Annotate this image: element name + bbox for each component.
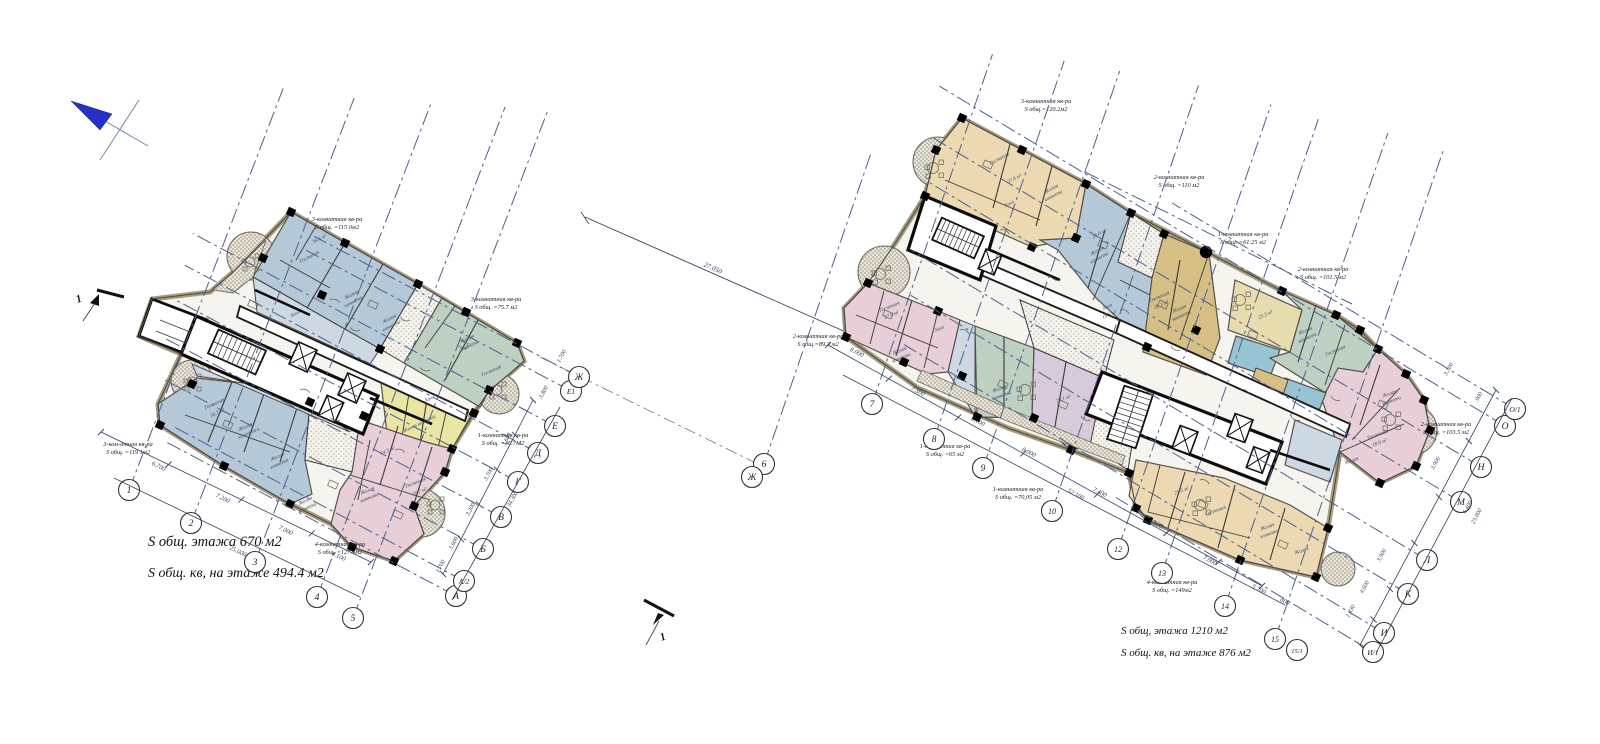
- svg-text:S общ. кв, на этаже 494.4 м2: S общ. кв, на этаже 494.4 м2: [148, 566, 324, 581]
- svg-text:Е: Е: [551, 422, 558, 432]
- svg-text:S общ.=89.3 м2: S общ.=89.3 м2: [797, 341, 839, 348]
- svg-text:S общ. =75.7 м2: S общ. =75.7 м2: [475, 304, 519, 311]
- svg-text:1-комнатная кв-ра: 1-комнатная кв-ра: [993, 486, 1044, 493]
- svg-text:S общ. =65 м2: S общ. =65 м2: [926, 451, 965, 458]
- svg-text:S общ. =70,05 м2: S общ. =70,05 м2: [995, 494, 1042, 501]
- svg-text:3-комнатная кв-ра: 3-комнатная кв-ра: [470, 296, 522, 303]
- svg-text:10: 10: [1048, 507, 1056, 516]
- svg-text:14: 14: [1221, 602, 1229, 611]
- svg-text:3: 3: [252, 558, 258, 568]
- svg-text:В: В: [498, 513, 504, 523]
- svg-text:S общ. =103.5 м2: S общ. =103.5 м2: [1423, 429, 1470, 436]
- svg-text:2-комнатная кв-ра: 2-комнатная кв-ра: [1154, 174, 1205, 181]
- svg-text:8: 8: [932, 435, 937, 445]
- svg-text:О/1: О/1: [1509, 405, 1520, 414]
- svg-text:2: 2: [189, 519, 194, 529]
- svg-text:S общ. =115 0м2: S общ. =115 0м2: [315, 224, 360, 231]
- svg-text:Ж: Ж: [574, 373, 585, 383]
- svg-text:S общ. =149м2: S общ. =149м2: [1152, 587, 1193, 594]
- svg-text:13: 13: [1158, 569, 1166, 578]
- svg-text:1: 1: [127, 486, 132, 496]
- svg-text:12: 12: [1114, 545, 1122, 554]
- svg-text:3-комнатная кв-ра: 3-комнатная кв-ра: [1020, 98, 1072, 105]
- svg-text:2-комнатная кв-ра: 2-комнатная кв-ра: [793, 333, 844, 340]
- svg-text:2-комнатная кв-ра: 2-комнатная кв-ра: [1298, 266, 1349, 273]
- svg-text:5: 5: [351, 614, 356, 624]
- svg-text:S общ. кв, на этаже 876 м2: S общ. кв, на этаже 876 м2: [1121, 647, 1251, 659]
- svg-text:Ж: Ж: [747, 473, 758, 483]
- svg-text:2-комнатная кв-ра: 2-комнатная кв-ра: [1421, 421, 1472, 428]
- svg-text:3-комнатная кв-ра: 3-комнатная кв-ра: [311, 216, 363, 223]
- svg-text:И/1: И/1: [1366, 648, 1378, 657]
- svg-text:15/1: 15/1: [1291, 648, 1303, 655]
- svg-text:S общ, этажа 1210 м2: S общ, этажа 1210 м2: [1121, 625, 1228, 637]
- svg-text:6: 6: [762, 460, 767, 470]
- svg-text:4: 4: [315, 593, 320, 603]
- svg-text:Н: Н: [1477, 463, 1486, 473]
- svg-text:S общ. этажа 670 м2: S общ. этажа 670 м2: [148, 534, 282, 550]
- svg-text:S общ. =101.5 м2: S общ. =101.5 м2: [1300, 274, 1347, 281]
- svg-text:9: 9: [981, 464, 986, 474]
- svg-text:15: 15: [1271, 635, 1279, 644]
- svg-text:Е1: Е1: [566, 387, 575, 396]
- svg-text:1-комнатная кв-ра: 1-комнатная кв-ра: [478, 432, 529, 439]
- svg-text:О: О: [1502, 422, 1509, 432]
